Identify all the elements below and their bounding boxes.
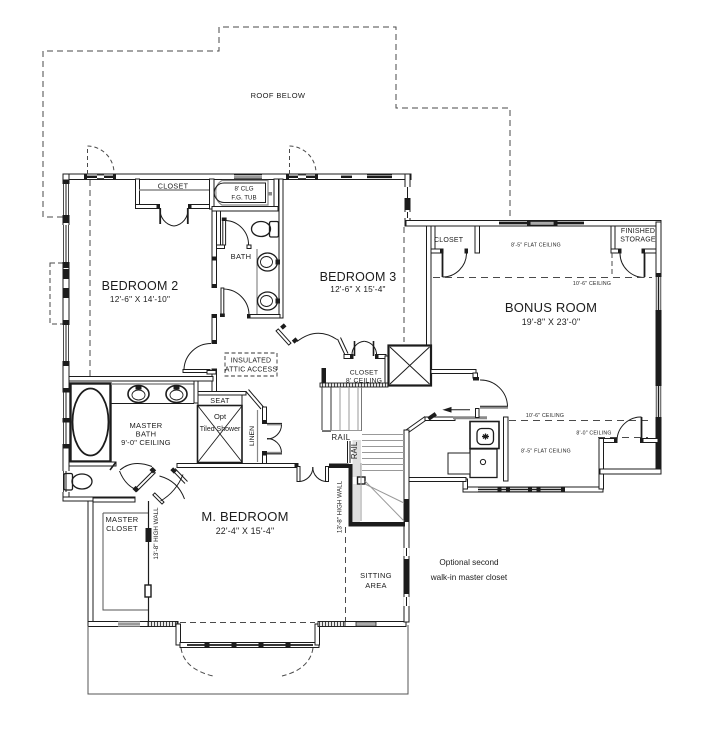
svg-text:RAIL: RAIL — [350, 441, 359, 459]
svg-text:Opt: Opt — [214, 412, 227, 421]
svg-text:BEDROOM 3: BEDROOM 3 — [320, 270, 397, 284]
svg-text:CLOSET: CLOSET — [434, 237, 464, 244]
svg-text:CLOSET: CLOSET — [350, 370, 378, 377]
svg-text:CLOSET: CLOSET — [106, 524, 138, 533]
svg-text:13'-8" HIGH WALL: 13'-8" HIGH WALL — [337, 480, 344, 533]
svg-text:M. BEDROOM: M. BEDROOM — [201, 509, 288, 524]
svg-text:8'-0" CEILING: 8'-0" CEILING — [576, 431, 611, 437]
svg-text:8'-5" FLAT CEILING: 8'-5" FLAT CEILING — [521, 449, 571, 455]
svg-text:CLOSET: CLOSET — [158, 182, 189, 191]
svg-text:BEDROOM 2: BEDROOM 2 — [102, 279, 179, 293]
svg-text:12'-6" X 15'-4": 12'-6" X 15'-4" — [330, 284, 385, 294]
svg-text:9'-0" CEILING: 9'-0" CEILING — [121, 438, 171, 447]
svg-text:Optional second: Optional second — [439, 558, 499, 567]
svg-text:walk-in master closet: walk-in master closet — [430, 573, 508, 582]
svg-text:10'-6" CEILING: 10'-6" CEILING — [526, 413, 564, 419]
svg-text:19'-8" X 23'-0": 19'-8" X 23'-0" — [522, 317, 581, 327]
svg-text:8' CEILING: 8' CEILING — [346, 377, 382, 384]
svg-text:INSULATED: INSULATED — [231, 358, 272, 365]
svg-text:13'-8" HIGH WALL: 13'-8" HIGH WALL — [153, 507, 160, 560]
svg-text:SEAT: SEAT — [210, 396, 230, 405]
svg-text:8' CLG: 8' CLG — [234, 186, 253, 193]
svg-text:SITTING: SITTING — [360, 571, 392, 580]
svg-text:ROOF BELOW: ROOF BELOW — [251, 91, 306, 100]
svg-text:10'-6" CEILING: 10'-6" CEILING — [573, 281, 611, 287]
svg-text:22'-4" X 15'-4": 22'-4" X 15'-4" — [216, 526, 275, 536]
svg-text:12'-6" X 14'-10": 12'-6" X 14'-10" — [110, 294, 170, 304]
svg-text:8'-5" FLAT CEILING: 8'-5" FLAT CEILING — [511, 243, 561, 249]
svg-text:ATTIC ACCESS: ATTIC ACCESS — [225, 367, 278, 374]
svg-text:BONUS ROOM: BONUS ROOM — [505, 300, 597, 315]
svg-text:RAIL: RAIL — [332, 433, 351, 442]
svg-text:LINEN: LINEN — [249, 426, 256, 446]
svg-text:FINISHED: FINISHED — [621, 228, 655, 235]
svg-text:MASTER: MASTER — [105, 515, 138, 524]
svg-text:AREA: AREA — [365, 581, 387, 590]
svg-text:F.G. TUB: F.G. TUB — [231, 195, 256, 202]
svg-text:Tiled Shower: Tiled Shower — [200, 426, 241, 433]
svg-text:STORAGE: STORAGE — [620, 237, 656, 244]
svg-text:BATH: BATH — [231, 252, 252, 261]
